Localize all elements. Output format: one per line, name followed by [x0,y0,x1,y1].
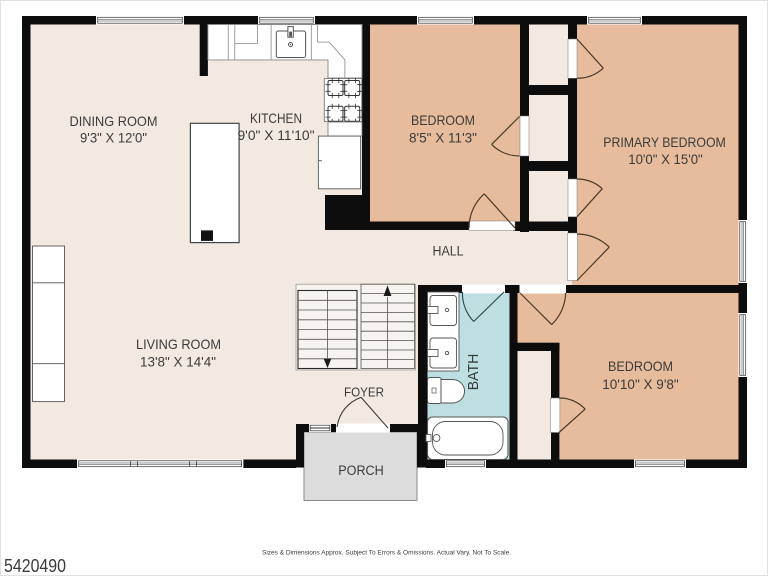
svg-text:Sizes & Dimensions Approx. Sub: Sizes & Dimensions Approx. Subject To Er… [262,550,511,557]
svg-text:PRIMARY BEDROOM: PRIMARY BEDROOM [603,135,726,150]
svg-text:KITCHEN: KITCHEN [250,111,302,126]
svg-text:BEDROOM: BEDROOM [411,113,475,128]
svg-text:BEDROOM: BEDROOM [608,359,673,374]
svg-text:9'3" X 12'0": 9'3" X 12'0" [80,131,147,146]
svg-text:13'8" X 14'4": 13'8" X 14'4" [140,355,216,370]
svg-text:5420490: 5420490 [4,555,66,576]
svg-text:BATH: BATH [465,354,482,391]
svg-text:FOYER: FOYER [344,385,384,400]
svg-text:10'10" X 9'8": 10'10" X 9'8" [602,377,679,392]
svg-text:8'5" X 11'3": 8'5" X 11'3" [409,131,477,146]
svg-text:10'0" X 15'0": 10'0" X 15'0" [628,152,703,167]
svg-text:PORCH: PORCH [338,463,384,478]
svg-text:9'0" X 11'10": 9'0" X 11'10" [238,128,315,143]
svg-text:HALL: HALL [433,244,464,259]
svg-text:DINING ROOM: DINING ROOM [70,114,158,129]
svg-text:LIVING ROOM: LIVING ROOM [136,337,221,352]
